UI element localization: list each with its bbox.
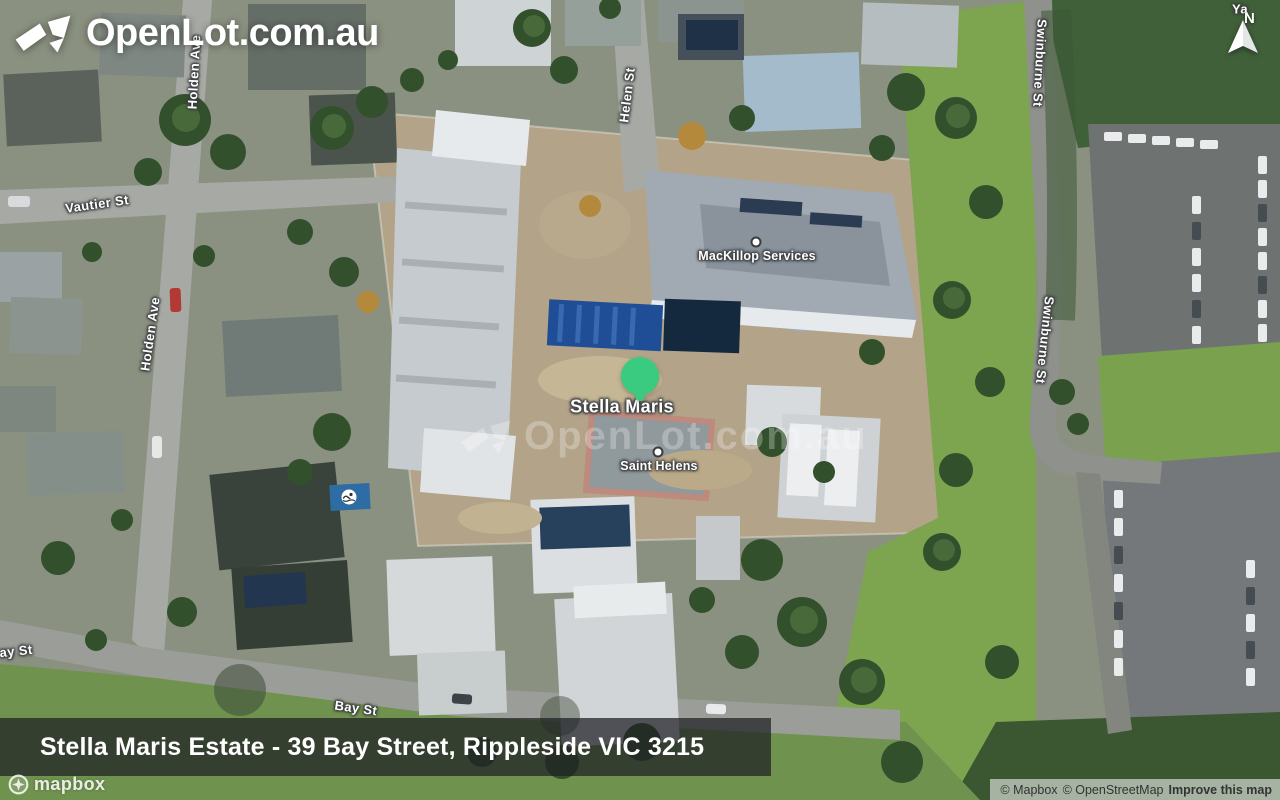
map-canvas[interactable]: Vautier St Holden Ave Holden Ave Helen S… <box>0 0 1280 800</box>
poi-dot-mackillop <box>751 237 762 248</box>
attribution-mapbox-link[interactable]: © Mapbox <box>1000 783 1057 797</box>
improve-this-map-link[interactable]: Improve this map <box>1169 783 1273 797</box>
compass-north-label: N <box>1244 10 1255 27</box>
attribution-bar: © Mapbox © OpenStreetMap Improve this ma… <box>990 779 1280 800</box>
app-window: Vautier St Holden Ave Holden Ave Helen S… <box>0 0 1280 800</box>
estate-marker-pin[interactable] <box>618 355 662 405</box>
attribution-osm-link[interactable]: © OpenStreetMap <box>1063 783 1164 797</box>
mapbox-logo-link[interactable]: mapbox <box>8 774 105 795</box>
openlot-bird-icon <box>14 13 72 55</box>
openlot-logo[interactable]: OpenLot.com.au <box>14 12 379 55</box>
openlot-logo-text: OpenLot.com.au <box>86 12 379 55</box>
mapbox-icon <box>8 774 29 795</box>
address-banner-title: Stella Maris Estate - 39 Bay Street, Rip… <box>40 733 704 762</box>
mapbox-logo-text: mapbox <box>34 774 105 795</box>
swimming-pool-icon <box>341 489 357 505</box>
address-banner: Stella Maris Estate - 39 Bay Street, Rip… <box>0 718 771 776</box>
poi-dot-saint-helens <box>653 447 664 458</box>
